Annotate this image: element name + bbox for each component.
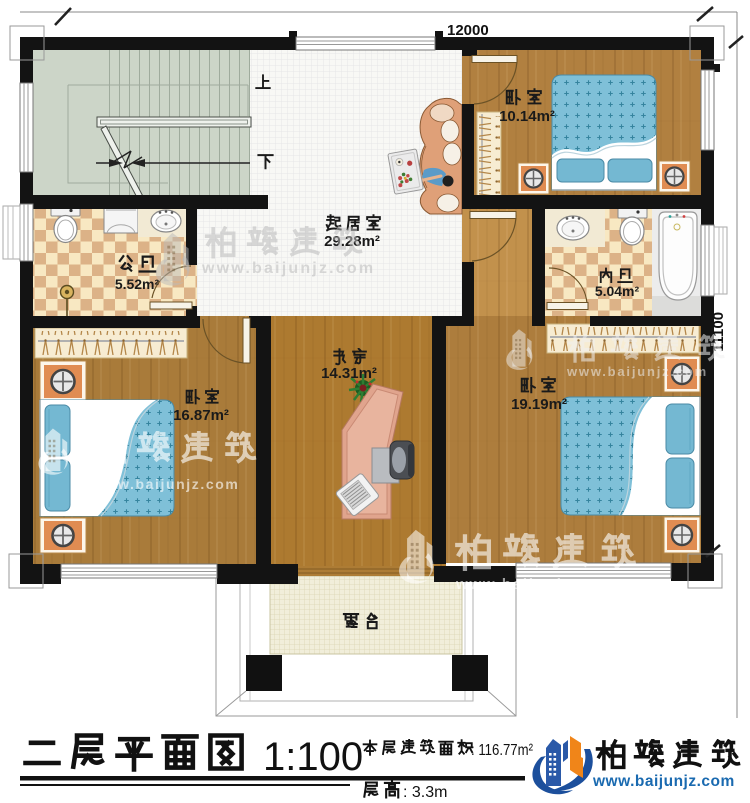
svg-text:5.04m²: 5.04m² bbox=[595, 283, 640, 299]
svg-text:www.baijunjz.com: www.baijunjz.com bbox=[566, 364, 708, 379]
svg-text:16.87m²: 16.87m² bbox=[173, 407, 229, 424]
svg-text:: 3.3m: : 3.3m bbox=[403, 784, 447, 801]
svg-text:12000: 12000 bbox=[447, 22, 489, 39]
svg-text:www.baijunjz.com: www.baijunjz.com bbox=[455, 576, 614, 593]
svg-text:www.baijunjz.com: www.baijunjz.com bbox=[201, 260, 375, 277]
svg-text:: 116.77m²: : 116.77m² bbox=[471, 742, 534, 759]
svg-text:1:100: 1:100 bbox=[263, 735, 363, 779]
svg-text:14.31m²: 14.31m² bbox=[321, 365, 377, 382]
svg-text:www.baijunjz.com: www.baijunjz.com bbox=[592, 773, 735, 790]
svg-text:19.19m²: 19.19m² bbox=[511, 396, 567, 413]
svg-text:10.14m²: 10.14m² bbox=[499, 108, 555, 125]
svg-text:5.52m²: 5.52m² bbox=[115, 276, 160, 292]
svg-text:www.baijunjz.com: www.baijunjz.com bbox=[92, 476, 239, 492]
